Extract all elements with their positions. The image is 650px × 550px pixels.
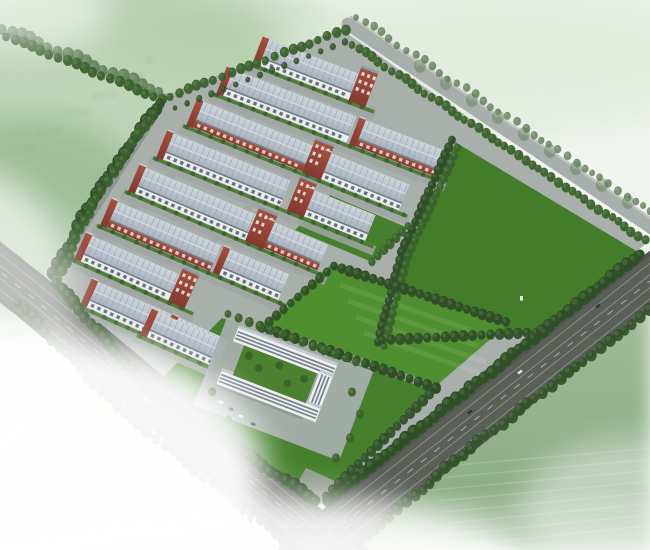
industrial-park-scene [0,0,650,550]
aerial-render-industrial-park [0,0,650,550]
gate-hut [520,296,523,301]
